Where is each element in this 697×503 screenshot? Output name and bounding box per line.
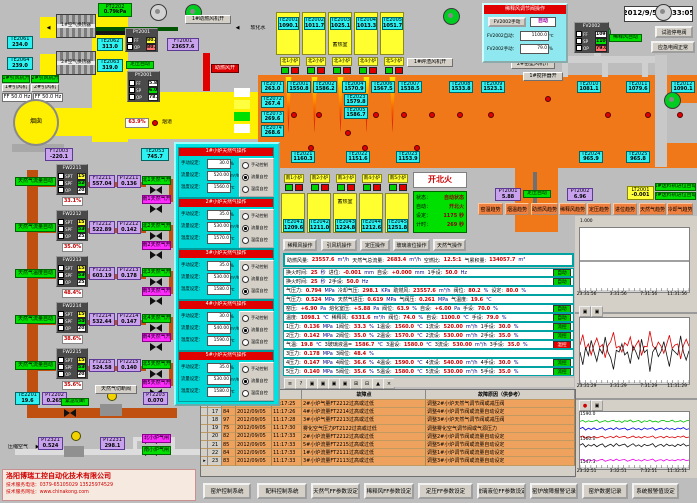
popup-field-label: 流量设定：: [181, 325, 203, 331]
log-fault-cell[interactable]: 雾化空气压力PT2122过高或过低: [302, 425, 426, 433]
radio-icon[interactable]: [242, 366, 249, 373]
soft-water-label: 软化水: [243, 25, 273, 33]
log-cell[interactable]: ▸: [201, 457, 208, 465]
popup-setpoint-input[interactable]: 1590.0: [207, 336, 231, 346]
log-cell[interactable]: 11:17:33: [272, 433, 302, 441]
popup-setpoint-input[interactable]: 520.00: [207, 171, 231, 181]
south3-gas-open: 南3天然气开: [142, 287, 171, 296]
radio-icon[interactable]: [242, 378, 249, 385]
chart-ytick: 1590.0: [580, 412, 595, 417]
sensor-dot-icon: [457, 112, 463, 118]
company-info: 洛阳博瑞工控自动化技术有限公司 技术服务电话：0379-65105029 135…: [2, 469, 196, 501]
te2023-bottom-box: TE20231153.9: [396, 151, 420, 163]
te2011-box: TE20111079.6: [626, 81, 650, 93]
log-cell[interactable]: 23: [208, 457, 222, 465]
log-row[interactable]: 17842012/09/0511:17:264#小炉流量FT2214过高或过低调…: [201, 408, 575, 416]
burner-indicator: [291, 67, 299, 74]
log-cause-cell[interactable]: 调整4#小炉调节阀或流量自动设定: [426, 408, 575, 416]
mini-box: [234, 124, 250, 133]
log-row[interactable]: 20822012/09/0511:17:332#小炉流量FT2212过高或过低调…: [201, 433, 575, 441]
bottom-button-7[interactable]: 窑炉故障报警记录: [530, 483, 578, 499]
popup-section-title: 3#小炉天然气操作: [179, 250, 273, 258]
popup-setpoint-input[interactable]: 35.0: [207, 261, 231, 271]
popup-setpoint-input[interactable]: 530.00: [207, 222, 231, 232]
log-cell[interactable]: [201, 433, 208, 441]
burner-indicator: [385, 67, 393, 74]
log-cell[interactable]: 2012/09/05: [236, 441, 272, 449]
bottom-button-4[interactable]: 稀释风FF参数设定: [364, 483, 414, 499]
dilution-setpoint-input[interactable]: 1100.0: [520, 31, 549, 41]
level-noise-trend-chart: [579, 317, 690, 385]
popup-unit-label: %: [230, 365, 234, 370]
popup-mode-option[interactable]: 手动控制: [240, 159, 273, 171]
te2053-box: TE2053745.7: [141, 148, 169, 161]
burner-indicator: [363, 184, 371, 191]
popup-section-title: 4#小炉天然气操作: [179, 301, 273, 309]
param-row-12: 5压力:0.140MPa5阀位:35.6%5温设:1580.0℃5流设:530.…: [283, 367, 574, 376]
radio-icon[interactable]: [242, 213, 249, 220]
te2022-box: TE20221151.6: [346, 151, 370, 163]
fw2212-controller: FW2212SPT1570.0SPF530.00OP25.0 %: [56, 210, 88, 241]
valve-body: [100, 404, 122, 416]
popup-unit-label: %: [230, 212, 234, 217]
sensor-dot-icon: [429, 112, 435, 118]
burner-indicator: [347, 184, 355, 191]
popup-setpoint-input[interactable]: 1570.0: [207, 234, 231, 244]
log-row[interactable]: 19752012/09/0511:17:30雾化空气压力PT2122过高或过低调…: [201, 425, 575, 433]
log-cause-cell[interactable]: 调整3#小炉天然气调节阀或减压阀: [426, 416, 575, 424]
log-cell[interactable]: 2012/09/05: [236, 449, 272, 457]
regen-te-box: TE20041013.3: [356, 17, 377, 30]
ft2215-box: FT2215524.58: [89, 359, 115, 372]
regen-te-box: TE20021011.7: [304, 17, 325, 30]
gas-shutoff-valve-label: 天然气切断阀: [95, 385, 137, 394]
popup-unit-label: ℃: [230, 185, 235, 190]
burner-north-3: 北3小炉: [330, 57, 354, 74]
popup-unit-label: m³/h: [230, 377, 239, 382]
log-fault-cell[interactable]: 2#小炉气量FT2212过高或过低: [302, 400, 426, 408]
popup-setpoint-input[interactable]: 35.0: [207, 210, 231, 220]
north3-gas-open: 北3天然气开: [142, 268, 171, 277]
log-cell[interactable]: 11:17:33: [272, 441, 302, 449]
popup-mode-radio-group: 手动控制流量自控温度自控: [239, 260, 274, 299]
radio-icon[interactable]: [242, 390, 249, 397]
log-cell[interactable]: 11:17:33: [272, 457, 302, 465]
log-cause-cell[interactable]: 调整1#小炉调节阀或流量自动设定: [426, 449, 575, 457]
air-drop: [602, 63, 608, 77]
popup-mode-radio-group: 手动控制流量自控温度自控: [239, 362, 274, 401]
log-cell[interactable]: 83: [222, 457, 236, 465]
popup-field-label: 流量设定：: [181, 223, 203, 229]
valve-icon: [150, 205, 162, 213]
popup-unit-label: ℃: [230, 389, 235, 394]
trend-button-2[interactable]: 烟温趋势: [505, 203, 529, 215]
popup-mode-option[interactable]: 温度自控: [240, 285, 273, 297]
log-row[interactable]: ▸23832012/09/0511:17:333#小炉流量FT2113过高或过低…: [201, 457, 575, 465]
regenerator-chamber-north: TE20041013.3: [354, 12, 378, 55]
valve4-pct: 38.6%: [62, 335, 83, 344]
controller-value: 1560.0: [77, 173, 86, 180]
param-row-6: 温度:1098.1℃稀释风:6331.6m³/h阀位:74.0%自设:1100.…: [283, 313, 574, 322]
popup-mode-option[interactable]: 温度自控: [240, 387, 273, 399]
fire-direction-button[interactable]: 开北火: [413, 172, 467, 188]
popup-mode-option[interactable]: 温度自控: [240, 183, 273, 195]
popup-field-label: 流量设定：: [181, 274, 203, 280]
log-cell[interactable]: 21: [208, 441, 222, 449]
regen-te-box: TE20011090.1: [278, 17, 299, 30]
trend-button-6[interactable]: 进位趋势: [613, 203, 637, 215]
controller-value: 1098.1: [595, 31, 607, 38]
north2-gas-open: 北2天然气开: [142, 222, 171, 231]
log-cell[interactable]: 2012/09/05: [236, 416, 272, 424]
comb-fan1-on-label: 1#助燃风机开: [185, 15, 231, 24]
regen-te-box: TE20431224.8: [335, 219, 356, 232]
regen-te-box: TE20411209.6: [283, 219, 304, 232]
log-cell[interactable]: 84: [222, 449, 236, 457]
sensor-dot-icon: [605, 112, 611, 118]
popup-mode-option[interactable]: 流量自控: [240, 222, 273, 234]
controller-value: 20.0 %: [77, 371, 86, 378]
radio-icon[interactable]: [242, 225, 249, 232]
fw2214-controller: FW2214SPT1590.0SPF540.00OP20.0 %: [56, 302, 88, 333]
ft2213-box: FT2213603.19: [89, 267, 115, 280]
popup-mode-option[interactable]: 温度自控: [240, 234, 273, 246]
burner-south-3: 南3小炉: [334, 174, 358, 191]
valve3-pct: 48.4%: [62, 289, 83, 298]
furnace-pressure-trend-chart: [579, 227, 690, 293]
popup-setpoint-input[interactable]: 540.00: [207, 324, 231, 334]
popup-unit-label: m³/h: [230, 173, 239, 178]
te2005-crown-box: TE20051586.7: [344, 107, 368, 119]
regen-te-box: TE20421211.0: [309, 219, 330, 232]
popup-mode-option[interactable]: 手动控制: [240, 363, 273, 375]
log-cause-cell[interactable]: 调整5#小炉调节阀或流量自动设定: [426, 441, 575, 449]
chart-record-icon[interactable]: ●: [579, 400, 591, 411]
te2009-box: TE20091523.1: [481, 81, 505, 93]
radio-icon[interactable]: [242, 288, 249, 295]
op-button-2[interactable]: 引风机操作: [321, 239, 357, 251]
log-row[interactable]: 18972012/09/0511:17:283#小炉气量FT2213过高或过低调…: [201, 416, 575, 424]
log-cause-cell[interactable]: 调整2#小炉调节阀或流量自动设定: [426, 433, 575, 441]
controller-value: 80.1 %: [146, 44, 156, 51]
burner-south-4: 南4小炉: [360, 174, 384, 191]
chart-settings-icon[interactable]: ▣: [591, 400, 603, 411]
chart-xtick: 23:31:29: [570, 384, 604, 389]
bottom-button-8[interactable]: 窑炉数据记录: [582, 483, 628, 499]
log-row[interactable]: 21852012/09/0511:17:335#小炉流量FT2215过高或过低调…: [201, 441, 575, 449]
log-cell[interactable]: 11:17:33: [272, 449, 302, 457]
chart-xtick: 3:31:29: [601, 384, 635, 389]
popup-mode-option[interactable]: 手动控制: [240, 210, 273, 222]
popup-setpoint-input[interactable]: 35.0: [207, 363, 231, 373]
log-cell[interactable]: 97: [222, 416, 236, 424]
aux-button-1[interactable]: 试验停电阀: [655, 26, 693, 38]
popup-mode-option[interactable]: 温度自控: [240, 336, 273, 348]
company-name: 洛阳博瑞工控自动化技术有限公司: [6, 471, 192, 481]
regenerator-chamber-north: TE20051051.7: [380, 12, 404, 55]
log-cell[interactable]: 11:17:28: [272, 416, 302, 424]
param-row-3: 气压力:0.794MPa冷却气压:298.1KPa助燃风:23557.6m³/h…: [283, 286, 574, 295]
log-cell[interactable]: 75: [222, 425, 236, 433]
heat-exchanger-1: 1#空气换热器: [56, 14, 96, 38]
te2061-box: TE2061234.0: [7, 36, 33, 49]
radio-icon[interactable]: [242, 276, 249, 283]
popup-setpoint-input[interactable]: 1580.0: [207, 285, 231, 295]
controller-value: 520.00: [77, 180, 86, 187]
compressed-air-label: 压缩空气: [2, 444, 34, 452]
log-row[interactable]: 22842012/09/0511:17:331#小炉流量FT2111过高或过低调…: [201, 449, 575, 457]
regenerator-chamber-north: TE20021011.7: [302, 12, 326, 55]
radio-icon[interactable]: [242, 327, 249, 334]
chart-xtick: 3:31:56: [601, 292, 635, 297]
chart-ytick: 1.000: [580, 219, 593, 224]
param-row-2: 换火时间:25秒2手设:50.0Hz自动: [283, 277, 574, 286]
popup-mode-option[interactable]: 手动控制: [240, 312, 273, 324]
log-cause-cell[interactable]: 调整2#小炉天然气调节阀或减压阀: [426, 400, 575, 408]
log-cell[interactable]: [201, 416, 208, 424]
bottom-button-9[interactable]: 系统报警值设定: [632, 483, 679, 499]
popup-setpoint-input[interactable]: 30.0: [207, 159, 231, 169]
bottom-button-1[interactable]: 窑炉控制系统: [203, 483, 251, 499]
popup-setpoint-input[interactable]: 30.0: [207, 312, 231, 322]
south4-gas-open: 南4天然气开: [142, 333, 171, 342]
popup-mode-radio-group: 手动控制流量自控温度自控: [239, 311, 274, 350]
log-cell[interactable]: [201, 441, 208, 449]
popup-mode-option[interactable]: 流量自控: [240, 273, 273, 285]
burner-indicator: [281, 67, 289, 74]
regen-label-south: 蓄热室: [330, 199, 360, 207]
status-row: 状态：自动状态: [416, 193, 464, 202]
burner-south-5: 南5小炉: [386, 174, 410, 191]
gas-main-pipe: [27, 170, 38, 415]
popup-mode-radio-group: 手动控制流量自控温度自控: [239, 158, 274, 197]
burner-south-1: 南1小炉: [282, 174, 306, 191]
aux-button-2[interactable]: 应急电阀正常: [651, 41, 695, 53]
radio-icon[interactable]: [242, 237, 249, 244]
param-row-11: 4压力:0.147MPa4阀位:36.6%4温设:1590.0℃4流设:540.…: [283, 358, 574, 367]
chart-ytick: 1560.0: [580, 437, 595, 442]
dilution-valve-panel: 稀释风调节阀操作FV2002手动自动FV2002自动：1100.0℃FV2002…: [482, 3, 568, 63]
popup-setpoint-input[interactable]: 1560.0: [207, 183, 231, 193]
popup-field-label: 手动设定：: [181, 313, 203, 319]
bottom-button-5[interactable]: 定压FF参数设定: [418, 483, 473, 499]
controller-value: 1580.0: [77, 265, 86, 272]
ft2001-box: FT200123657.6: [167, 38, 199, 51]
te2012-box: TE20121090.1: [671, 81, 695, 93]
log-cell[interactable]: 18: [208, 416, 222, 424]
log-cell[interactable]: 2012/09/05: [236, 425, 272, 433]
radio-icon[interactable]: [242, 315, 249, 322]
bottom-button-6[interactable]: 玻璃液位FF参数设定: [477, 483, 526, 499]
log-cell[interactable]: 84: [222, 408, 236, 416]
sensor-dot-icon: [401, 112, 407, 118]
log-fault-cell[interactable]: 5#小炉流量FT2215过高或过低: [302, 441, 426, 449]
controller-value: 78.0 %: [148, 94, 158, 101]
log-cell[interactable]: 19: [208, 425, 222, 433]
flue-gas-arrow-icon: ◀: [44, 25, 53, 33]
te2024-box: TE2024965.9: [579, 151, 603, 163]
regen-te-box: TE20051051.7: [382, 17, 403, 30]
popup-setpoint-input[interactable]: 530.00: [207, 375, 231, 385]
log-cell[interactable]: [201, 425, 208, 433]
burner-indicator: [295, 184, 303, 191]
chart-record-icon[interactable]: ▣: [579, 306, 591, 317]
op-button-5[interactable]: 天然气操作: [433, 239, 466, 251]
company-phone: 技术服务电话：0379-65105029 13525974529: [6, 481, 192, 488]
pt2231-box: PT2231298.1: [100, 437, 125, 450]
op-button-1[interactable]: 稀释风操作: [283, 239, 317, 251]
log-fault-cell[interactable]: 2#小炉流量FT2212过高或过低: [302, 433, 426, 441]
valve1-pct: 33.1%: [62, 197, 83, 206]
te2073-box: TE2073269.6: [261, 111, 284, 123]
lt2001-box: LT2001-0.001: [627, 186, 654, 200]
burner-north-5: 北5小炉: [382, 57, 406, 74]
te2010-box: TE20101081.1: [577, 81, 601, 93]
valve-icon: [150, 186, 162, 194]
te2074-box: TE2074268.6: [261, 125, 284, 137]
burner-indicator: [317, 67, 325, 74]
popup-field-label: 温度设定：: [181, 184, 203, 190]
controller-value: 25.0 %: [77, 279, 86, 286]
valve-icon: [64, 409, 76, 417]
burner-indicator: [343, 67, 351, 74]
radio-icon[interactable]: [242, 339, 249, 346]
log-cell[interactable]: 82: [222, 433, 236, 441]
burner-indicator: [321, 184, 329, 191]
popup-mode-radio-group: 手动控制流量自控温度自控: [239, 209, 274, 248]
controller-value: 1580.0: [77, 357, 86, 364]
popup-field-label: 温度设定：: [181, 286, 203, 292]
log-cause-cell[interactable]: 调整雾化空气调节阀或气源压力: [426, 425, 575, 433]
popup-mode-option[interactable]: 流量自控: [240, 324, 273, 336]
pt2203-box: PT22030.070: [143, 392, 168, 405]
south5-gas-open: 南5天然气开: [142, 379, 171, 388]
log-fault-cell[interactable]: 3#小炉流量FT2113过高或过低: [302, 457, 426, 465]
heat-exchanger-2: 2#空气换热器: [56, 51, 96, 75]
status-row: 自动：开北火: [416, 202, 464, 211]
air-pipe: [133, 441, 137, 455]
burner-indicator: [389, 184, 397, 191]
trend-button-8[interactable]: 冷却气趋势: [667, 203, 693, 215]
bottom-button-2[interactable]: 配料控制系统: [257, 483, 307, 499]
chart-settings-icon[interactable]: ▣: [591, 306, 603, 317]
te2001-crown-box: TE20011550.8: [287, 81, 311, 93]
te2063-box: TE2063319.0: [97, 59, 123, 72]
radio-icon[interactable]: [242, 186, 249, 193]
op-button-4[interactable]: 玻璃液位操作: [393, 239, 430, 251]
dilution-mode-button[interactable]: FV2002手动: [488, 17, 526, 27]
log-cell[interactable]: 17: [208, 408, 222, 416]
te2008-box: TE20081533.8: [449, 81, 473, 93]
log-fault-cell[interactable]: 1#小炉流量FT2111过高或过低: [302, 449, 426, 457]
trend-button-5[interactable]: 定压趋势: [587, 203, 611, 215]
feeder2-auto-indicator: 2#送料机进位自动: [655, 192, 696, 200]
log-cell[interactable]: 85: [222, 441, 236, 449]
bottom-button-3[interactable]: 天然气FF参数设定: [311, 483, 360, 499]
popup-mode-option[interactable]: 手动控制: [240, 261, 273, 273]
popup-section-title: 2#小炉天然气操作: [179, 199, 273, 207]
popup-setpoint-input[interactable]: 530.00: [207, 273, 231, 283]
radio-icon[interactable]: [242, 264, 249, 271]
radio-icon[interactable]: [242, 174, 249, 181]
feeder1-auto-indicator: 1#送料机进位自动: [655, 183, 696, 191]
controller-value: 20.0 %: [77, 325, 86, 332]
log-cell[interactable]: 2012/09/05: [236, 457, 272, 465]
fw2211-controller: FW2211SPT1560.0SPF520.00OP20.0 %: [56, 164, 88, 195]
trend-button-1[interactable]: 窑温趋势: [478, 203, 503, 215]
popup-mode-option[interactable]: 流量自控: [240, 375, 273, 387]
dilution-mode-value: 自动: [530, 17, 556, 27]
dilution-setpoint-input[interactable]: 79.0: [520, 44, 549, 54]
controller-value: 530.00: [77, 226, 86, 233]
trend-button-3[interactable]: 助燃风趋势: [531, 203, 558, 215]
te2025-box: TE2025965.8: [626, 151, 650, 163]
burner-north-4: 北4小炉: [356, 57, 380, 74]
chart-xtick: 23:31:56: [570, 292, 604, 297]
dilution-auto-indicator: 稀释风自动: [609, 34, 642, 42]
mode-chip: 流控: [553, 368, 571, 376]
burner-indicator: [399, 184, 407, 191]
popup-mode-option[interactable]: 流量自控: [240, 171, 273, 183]
log-cell[interactable]: 11:17:26: [272, 408, 302, 416]
op-button-3[interactable]: 定压操作: [360, 239, 390, 251]
regenerator-chamber-south: TE20421211.0: [307, 193, 331, 233]
fw2213-controller: FW2213SPT1580.0SPF530.00OP25.0 %: [56, 256, 88, 287]
te2006-crown-box: TE20061567.5: [371, 81, 395, 93]
burner-indicator: [337, 184, 345, 191]
log-cell[interactable]: 11:17:30: [272, 425, 302, 433]
mode-chip: 自动: [553, 314, 571, 322]
sensor-dot-icon: [677, 112, 683, 118]
log-cell[interactable]: 22: [208, 449, 222, 457]
burner-gas-popup: 1#小炉天然气操作手动设定：30.0%流量设定：520.00m³/h温度设定：1…: [174, 142, 280, 406]
popup-section-5: 5#小炉天然气操作手动设定：35.0%流量设定：530.00m³/h温度设定：1…: [178, 351, 274, 402]
valve5-pct: 35.6%: [62, 381, 83, 390]
py2001-top-controller: PY2001FF80.2 %OP80.1 %: [125, 28, 158, 52]
toolbar-strip: [394, 378, 574, 387]
radio-icon[interactable]: [242, 162, 249, 169]
popup-field-label: 手动设定：: [181, 160, 203, 166]
dilution-field-label: FV2002自动：: [487, 33, 517, 39]
valve2-pct: 35.0%: [62, 243, 83, 252]
melter-temperature-trend-chart: [579, 411, 690, 470]
log-cell[interactable]: 20: [208, 433, 222, 441]
trend-button-4[interactable]: 稀释风趋势: [559, 203, 586, 215]
gas-flow-auto-4: 天然气流量自动: [15, 315, 56, 324]
fv2002-controller: FV2002FF1098.1SP1100.0OP79.0 %: [574, 22, 609, 53]
log-cell[interactable]: 2012/09/05: [236, 433, 272, 441]
gas-flow-auto-5: 天然气流量自动: [15, 361, 56, 370]
log-cell[interactable]: 2012/09/05: [236, 408, 272, 416]
regen-label-north: 蓄热室: [325, 42, 355, 50]
pt2321-box: PT23210.524: [38, 437, 63, 450]
pt2212-box: PT22120.142: [117, 221, 141, 234]
trend-button-7[interactable]: 天然气趋势: [639, 203, 666, 215]
log-fault-cell[interactable]: 4#小炉流量FT2214过高或过低: [302, 408, 426, 416]
param-row-10: 3压力:0.178MPa3阀位:48.4%: [283, 349, 574, 358]
te2072-box: TE2072267.4: [261, 96, 284, 108]
ft2214-box: FT2214532.44: [89, 313, 115, 326]
popup-field-label: 温度设定：: [181, 337, 203, 343]
log-cell[interactable]: [201, 449, 208, 457]
log-fault-cell[interactable]: 3#小炉气量FT2213过高或过低: [302, 416, 426, 424]
log-cell[interactable]: [201, 408, 208, 416]
popup-setpoint-input[interactable]: 1580.0: [207, 387, 231, 397]
burner-indicator: [359, 67, 367, 74]
te2023-crown-box: TE20231579.8: [344, 94, 368, 106]
log-cause-cell[interactable]: 调整3#小炉调节阀或流量自动设定: [426, 457, 575, 465]
chart-xtick: 11:32:51: [660, 469, 694, 474]
